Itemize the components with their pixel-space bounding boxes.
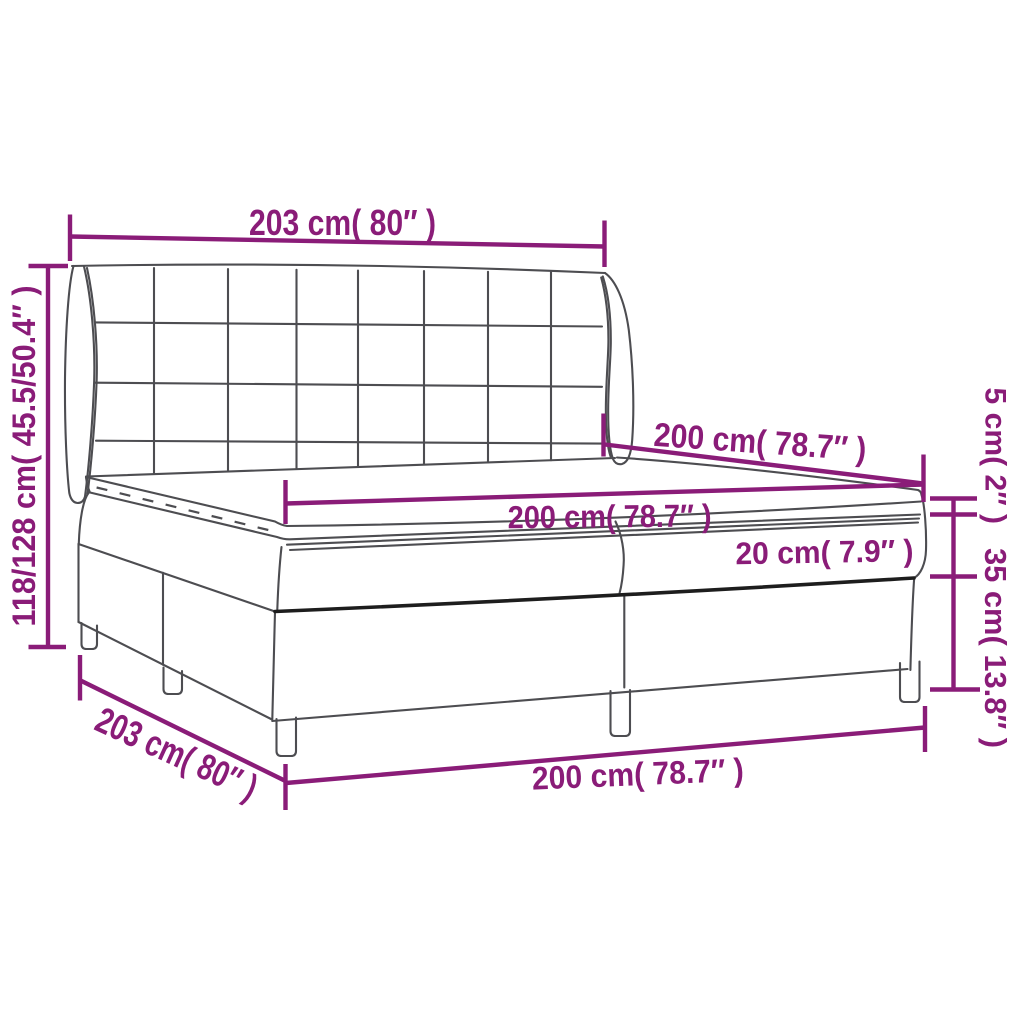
svg-text:20 cm( 7.9″ ): 20 cm( 7.9″ ) <box>735 533 914 571</box>
svg-text:118/128 cm( 45.5/50.4″ ): 118/128 cm( 45.5/50.4″ ) <box>6 286 42 627</box>
svg-text:203 cm( 80″ ): 203 cm( 80″ ) <box>249 202 436 243</box>
svg-text:35 cm( 13.8″ ): 35 cm( 13.8″ ) <box>978 548 1012 748</box>
svg-text:200 cm( 78.7″ ): 200 cm( 78.7″ ) <box>507 498 711 536</box>
svg-text:5 cm( 2″ ): 5 cm( 2″ ) <box>979 388 1012 525</box>
